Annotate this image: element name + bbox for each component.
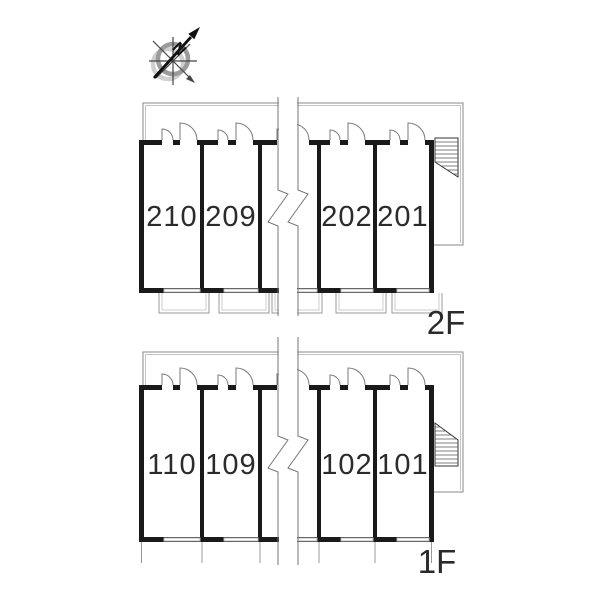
break-mask-1f xyxy=(279,337,297,565)
door-arc xyxy=(348,368,365,385)
window xyxy=(164,538,200,541)
compass: N xyxy=(149,27,200,85)
break-mask-2f xyxy=(279,97,297,316)
room-number: 201 xyxy=(377,201,428,233)
floor-label-1f: 1F xyxy=(418,543,457,580)
window xyxy=(224,538,258,541)
door-arc xyxy=(408,123,425,140)
room-number: 202 xyxy=(321,201,372,233)
floor-1f: 110 109 102 101 1F xyxy=(139,337,463,580)
balconies-2f xyxy=(159,293,442,313)
door-arc xyxy=(408,368,425,385)
door-arc xyxy=(162,374,173,385)
door-arc xyxy=(390,130,400,140)
door-arc xyxy=(236,368,253,385)
window xyxy=(341,538,373,541)
room-number: 210 xyxy=(146,201,197,233)
door-arc xyxy=(218,375,228,385)
window xyxy=(224,289,258,292)
southeast-arrowhead-icon xyxy=(186,75,195,83)
room-number: 101 xyxy=(377,449,428,481)
compass-spokes xyxy=(149,37,197,85)
stairs-icon-2f xyxy=(434,138,459,177)
window xyxy=(341,289,373,292)
room-number: 110 xyxy=(147,449,196,481)
door-arc xyxy=(180,123,197,140)
door-arc xyxy=(236,123,253,140)
floor-plan-page: N xyxy=(0,0,600,600)
window xyxy=(397,289,429,292)
door-arc xyxy=(330,130,340,140)
door-arc xyxy=(162,129,173,140)
door-arc xyxy=(330,375,340,385)
door-arc xyxy=(390,375,400,385)
floor-label-2f: 2F xyxy=(427,304,466,341)
window xyxy=(164,289,200,292)
room-number: 209 xyxy=(205,201,256,233)
floor-plan-canvas: N xyxy=(0,0,600,600)
room-number: 102 xyxy=(321,449,372,481)
door-arc xyxy=(180,368,197,385)
room-number: 109 xyxy=(205,449,256,481)
stairs-icon-1f xyxy=(434,423,459,466)
window xyxy=(397,538,429,541)
door-arc xyxy=(218,130,228,140)
floor-2f: 210 209 202 201 2F xyxy=(139,97,465,341)
door-arc xyxy=(348,123,365,140)
